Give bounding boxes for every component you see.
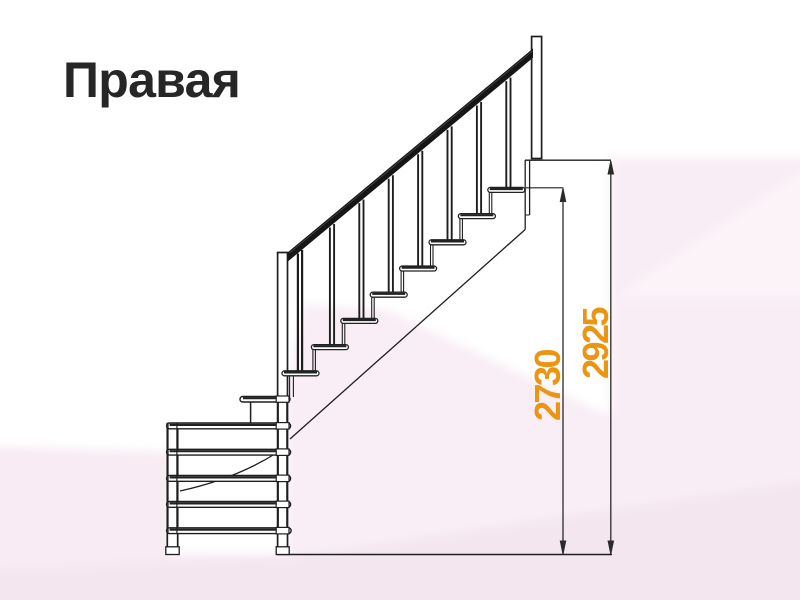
svg-text:2730: 2730 <box>527 349 568 421</box>
svg-text:2925: 2925 <box>575 306 616 379</box>
svg-text:Правая: Правая <box>63 52 240 108</box>
